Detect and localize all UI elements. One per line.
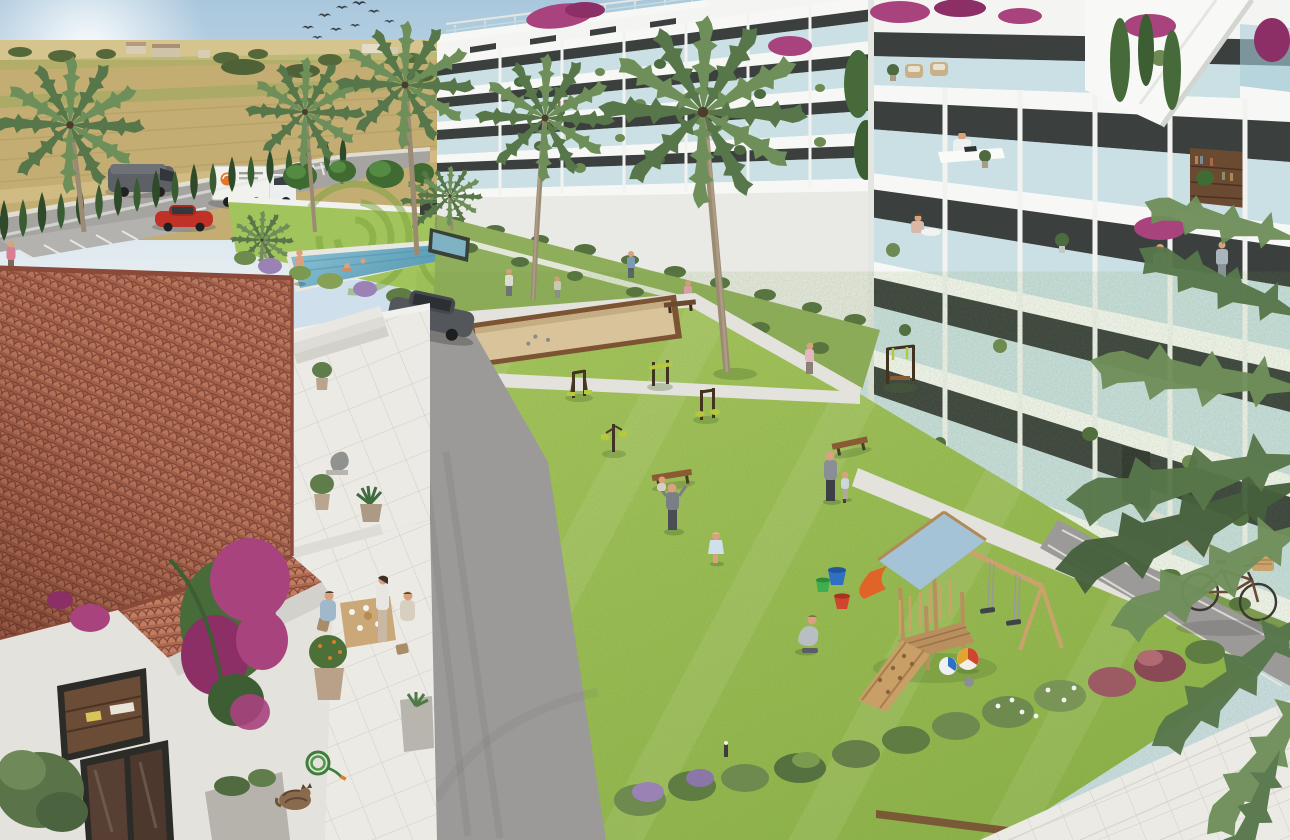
rendered-scene — [0, 0, 1290, 840]
aloe-planter — [400, 692, 434, 752]
bread-basket — [364, 612, 372, 620]
architectural-rendering — [0, 0, 1290, 840]
building-corner — [868, 0, 874, 455]
